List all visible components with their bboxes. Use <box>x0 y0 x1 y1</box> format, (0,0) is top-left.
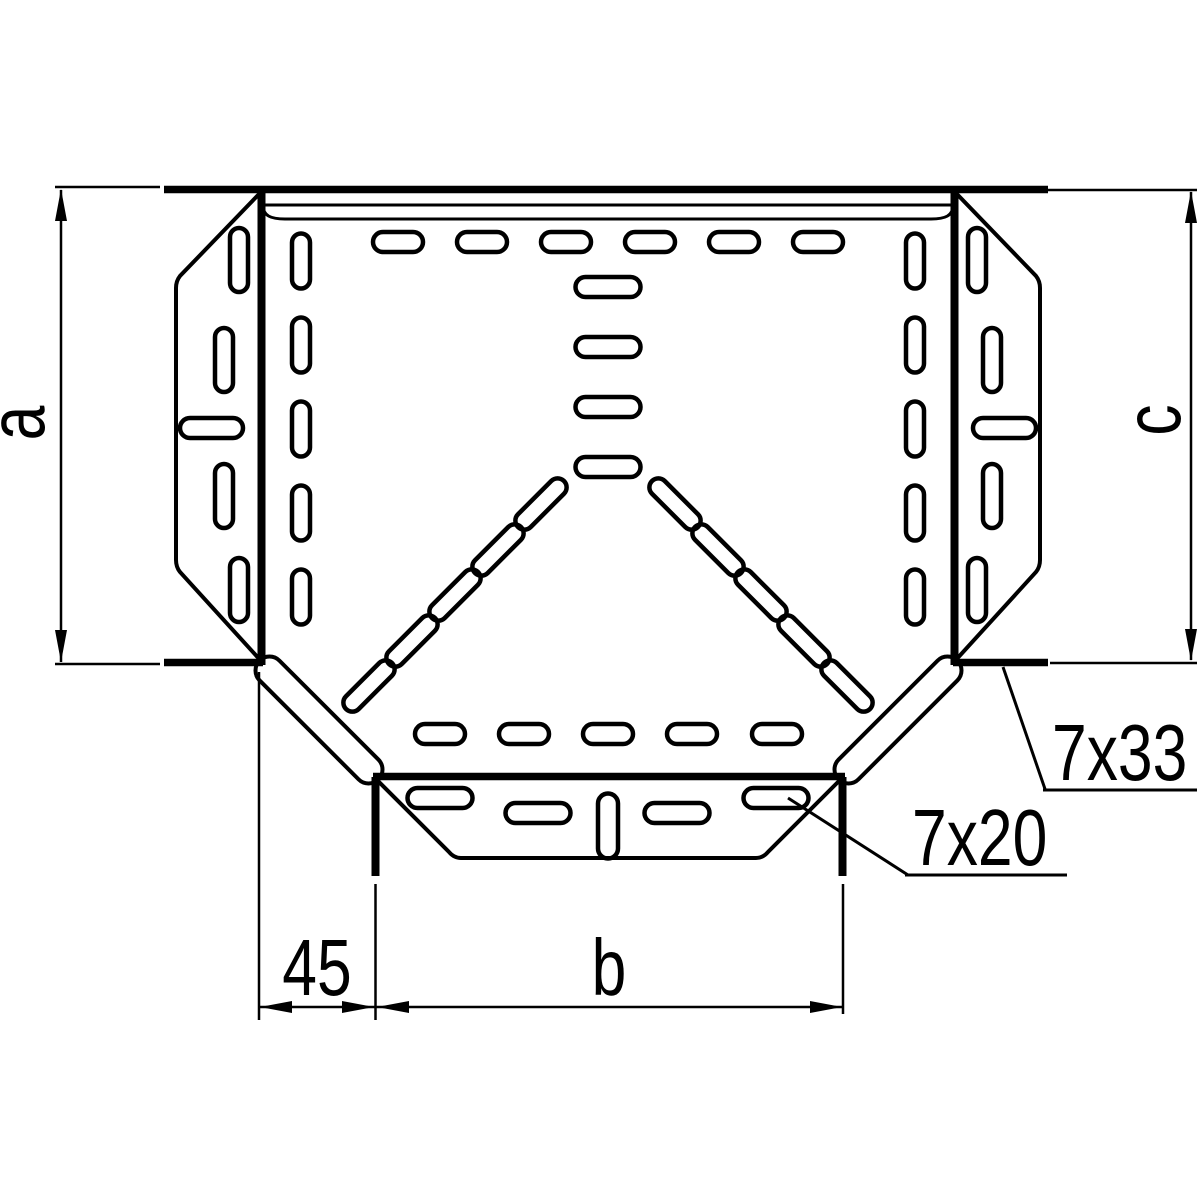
wall-slot <box>906 234 924 289</box>
wall-slot <box>906 570 924 625</box>
drawing-page: a c 45 b 7x33 7x20 <box>0 0 1200 1200</box>
floor-slot <box>583 724 633 744</box>
floor-slot <box>415 724 465 744</box>
branch-stub <box>373 777 845 877</box>
branch-slot <box>645 803 710 823</box>
floor-slot <box>541 232 591 252</box>
floor-slot <box>793 232 843 252</box>
flange-slot <box>180 418 243 438</box>
dim-b-label: b <box>592 924 627 1013</box>
dim-c-label: c <box>1109 404 1198 435</box>
floor-slot <box>576 397 641 417</box>
slot-size-7x33-label: 7x33 <box>1052 709 1187 798</box>
floor-slot <box>373 232 423 252</box>
floor-slot <box>457 232 507 252</box>
flange-slot <box>215 464 233 528</box>
right-chamfer-band <box>829 651 968 790</box>
main-run <box>164 187 1048 665</box>
slot-size-7x20-label: 7x20 <box>912 794 1047 883</box>
wall-slot <box>292 318 310 373</box>
flange-slot <box>983 464 1001 528</box>
floor-slot <box>499 724 549 744</box>
branch-slot <box>598 794 618 859</box>
left-end-flange <box>176 191 262 662</box>
branch-slot <box>506 803 571 823</box>
arrow-left-icon <box>377 1001 409 1013</box>
wall-slot <box>292 570 310 625</box>
wall-slot <box>292 486 310 541</box>
top-rim-rounded <box>263 205 953 219</box>
leader-line <box>1003 667 1045 789</box>
tee-technical-drawing: a c 45 b 7x33 7x20 <box>0 0 1200 1200</box>
wall-slot <box>292 234 310 289</box>
perforation-slots <box>292 232 924 744</box>
floor-slot <box>576 277 641 297</box>
arrow-up-icon <box>1185 191 1197 223</box>
wall-slot <box>906 318 924 373</box>
flange-slot <box>968 228 986 292</box>
callout-7x33: 7x33 <box>1003 667 1197 798</box>
floor-slot <box>667 724 717 744</box>
floor-slot <box>709 232 759 252</box>
arrow-up-icon <box>55 189 67 221</box>
callout-7x20: 7x20 <box>788 794 1067 883</box>
floor-slot <box>752 724 802 744</box>
dimension-a: a <box>0 187 160 664</box>
arrow-down-icon <box>55 630 67 662</box>
floor-slot <box>625 232 675 252</box>
flange-slot <box>230 558 248 622</box>
flange-slot <box>968 558 986 622</box>
floor-slot <box>576 337 641 357</box>
wall-slot <box>906 402 924 457</box>
arrow-down-icon <box>1185 629 1197 661</box>
dim-a-label: a <box>0 406 62 441</box>
flange-slot <box>215 328 233 392</box>
branch-chamfer-bands <box>250 651 968 790</box>
arrow-right-icon <box>810 1001 842 1013</box>
wall-slot <box>292 402 310 457</box>
wall-slot <box>906 486 924 541</box>
leader-line <box>788 798 908 875</box>
dim-45-label: 45 <box>282 924 351 1013</box>
left-chamfer-band <box>250 651 389 790</box>
flange-slot <box>983 328 1001 392</box>
right-end-flange <box>954 191 1040 662</box>
branch-slot <box>408 788 473 808</box>
floor-slot <box>576 457 641 477</box>
dimension-c: c <box>1048 190 1198 663</box>
flange-slot <box>230 228 248 292</box>
flange-slot <box>973 418 1036 438</box>
